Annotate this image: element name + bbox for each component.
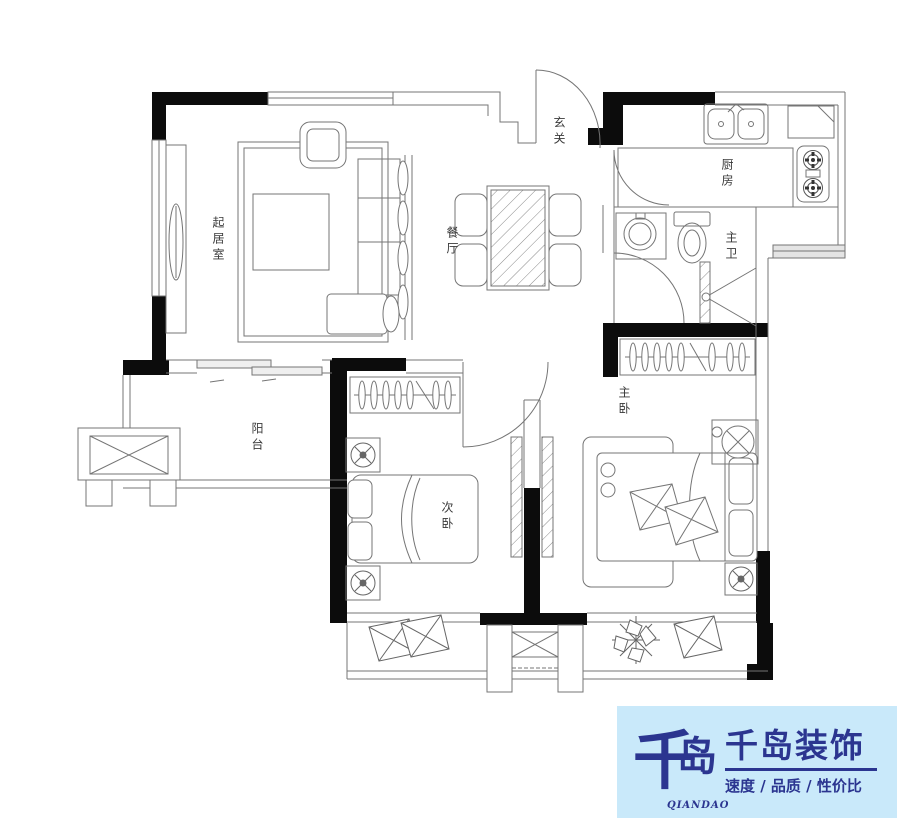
ac-platform-leg — [558, 625, 583, 692]
brand-tagline: 速度 / 品质 / 性价比 — [725, 775, 887, 796]
shower-door — [700, 262, 710, 323]
brand-roman-name: QIANDAO — [667, 800, 729, 811]
sofa-seats — [358, 159, 400, 295]
dining-chair — [455, 194, 487, 236]
kitchen-counter — [618, 148, 793, 207]
room-label-second-bedroom: 次卧 — [441, 501, 453, 533]
dining-chair — [549, 244, 581, 286]
sofa-chaise — [327, 294, 387, 334]
room-label-kitchen: 厨房 — [721, 158, 733, 190]
room-label-dining-room: 餐厅 — [446, 226, 458, 258]
room-label-master-bedroom: 主卧 — [618, 386, 630, 418]
floorplan-page: 起居室 餐厅 玄关 厨房 主卫 阳台 次卧 主卧 千 岛 QIANDAO 千岛装… — [0, 0, 900, 821]
kitchen-fixtures — [618, 104, 838, 207]
bay-window-items — [369, 615, 722, 692]
master-bedroom-door-arc — [614, 253, 684, 323]
pillow — [729, 510, 753, 556]
floorplan-drawing — [0, 0, 900, 821]
balcony-fixtures — [78, 428, 180, 506]
toilet-tank — [674, 212, 710, 226]
brand-mark-char2: 岛 — [677, 724, 717, 782]
ac-platform-leg — [487, 625, 512, 692]
second-bedroom-furniture — [346, 438, 478, 600]
room-label-master-bath: 主卫 — [725, 231, 737, 263]
dining-furniture — [455, 186, 581, 290]
bathroom-fixtures — [614, 207, 756, 326]
pillow — [348, 522, 372, 560]
pillow — [348, 480, 372, 518]
living-room-furniture — [166, 122, 412, 342]
second-bedroom-door-arc — [463, 362, 548, 447]
toilet-bowl — [678, 223, 706, 263]
round-pillow — [383, 296, 399, 332]
brand-text-block: 千岛装饰 速度 / 品质 / 性价比 — [725, 728, 887, 796]
brand-logo-panel: 千 岛 QIANDAO 千岛装饰 速度 / 品质 / 性价比 — [617, 706, 897, 818]
dining-chair — [549, 194, 581, 236]
kitchen-sink — [704, 104, 768, 144]
bath-hall-door-arc — [614, 150, 669, 205]
room-label-living-room: 起居室 — [212, 216, 224, 264]
bath-vanity — [616, 213, 666, 259]
sofa-bolster — [398, 161, 408, 195]
brand-company-name: 千岛装饰 — [725, 728, 887, 764]
room-label-balcony: 阳台 — [251, 422, 263, 454]
dining-chair — [455, 244, 487, 286]
pillow — [729, 458, 753, 504]
second-bedroom-wardrobe — [350, 377, 460, 413]
brand-logo-mark: 千 岛 QIANDAO — [631, 708, 731, 816]
coffee-table — [253, 194, 329, 270]
master-bedroom-wardrobe — [620, 339, 755, 375]
master-bedroom-furniture — [583, 420, 758, 595]
room-label-entry: 玄关 — [553, 116, 565, 148]
shower-corner — [706, 268, 756, 326]
fridge — [788, 106, 834, 138]
brand-divider — [725, 768, 877, 771]
